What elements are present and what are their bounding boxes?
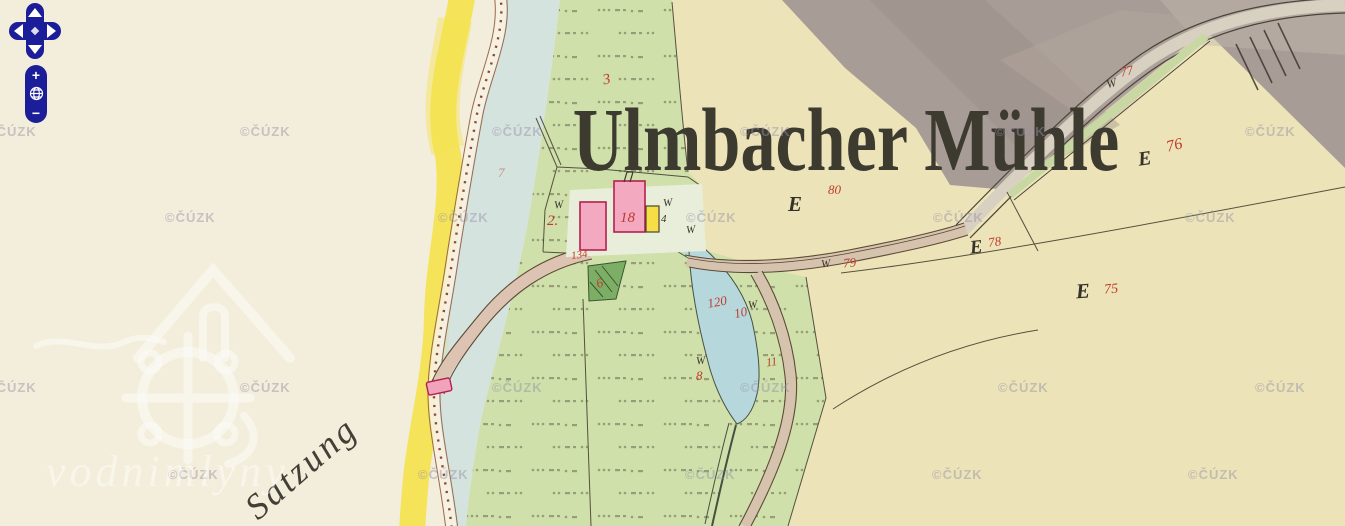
pan-left-button[interactable]	[14, 24, 23, 38]
pan-control	[9, 3, 61, 59]
zoom-control: + −	[25, 65, 47, 123]
house-number-4: 4	[661, 213, 667, 225]
map-canvas[interactable]: Ulmbacher Mühle Satzung 3 7 2. 18 134 6 …	[0, 0, 1345, 526]
parcel-label-7: 7	[498, 165, 505, 180]
zoom-world-button[interactable]	[25, 86, 47, 102]
parcel-label-79: 79	[842, 254, 857, 270]
zoom-in-button[interactable]: +	[25, 69, 47, 81]
parcel-label-8: 8	[696, 368, 703, 383]
building-pink-west	[580, 202, 606, 250]
parcel-label-134: 134	[570, 248, 589, 262]
parcel-label-11: 11	[765, 354, 778, 369]
parcel-label-80: 80	[828, 182, 842, 197]
parcel-label-75: 75	[1104, 281, 1119, 297]
letter-e: E	[1136, 147, 1153, 171]
letter-e: E	[968, 236, 984, 258]
pan-right-button[interactable]	[47, 24, 56, 38]
zoom-out-button[interactable]: −	[25, 107, 47, 119]
parcel-label-18: 18	[620, 210, 636, 226]
parcel-label-78: 78	[987, 233, 1002, 250]
map-viewer[interactable]: Ulmbacher Mühle Satzung 3 7 2. 18 134 6 …	[0, 0, 1345, 526]
pan-down-button[interactable]	[28, 45, 42, 54]
letter-e: E	[787, 192, 802, 216]
globe-icon	[29, 86, 44, 101]
pan-up-button[interactable]	[28, 8, 42, 17]
parcel-label-2: 2.	[547, 213, 558, 229]
letter-e: E	[1074, 278, 1091, 303]
building-yellow	[646, 206, 659, 232]
map-title: Ulmbacher Mühle	[573, 91, 1119, 190]
